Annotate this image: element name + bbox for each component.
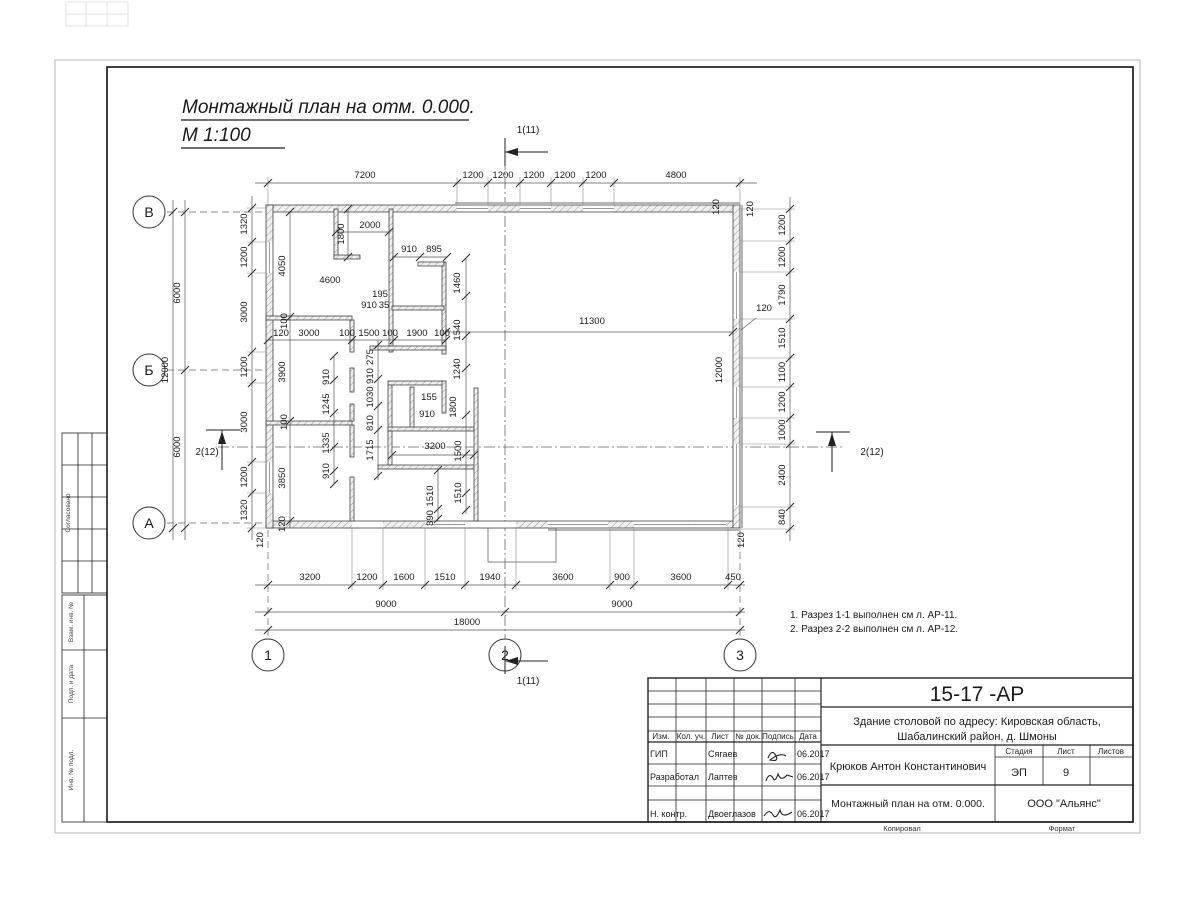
dimension-label: 6000	[172, 436, 183, 457]
dimension-label: 1460	[452, 272, 463, 293]
dimension-label: 100	[434, 328, 450, 339]
tb-name-ncontr: Двоеглазов	[708, 809, 756, 819]
dimension-label: 1900	[406, 328, 427, 339]
dimension-label: 1510	[453, 482, 464, 503]
dimension-lines	[173, 183, 790, 630]
inner-frame	[107, 67, 1133, 822]
dimension-label: 120	[277, 516, 288, 532]
dimension-label: 2000	[359, 220, 380, 231]
dimension-label: 4800	[665, 170, 686, 181]
tb-copied-label: Копировал	[883, 824, 921, 833]
dimension-label: 3000	[298, 328, 319, 339]
porch	[488, 528, 556, 562]
axis-row-v: В	[144, 204, 153, 220]
dimension-label: 1510	[425, 485, 436, 506]
dimension-label: 3600	[552, 572, 573, 583]
tb-object-line1: Здание столовой по адресу: Кировская обл…	[853, 716, 1101, 728]
dimension-label: 1600	[393, 572, 414, 583]
dimension-label: 4050	[277, 255, 288, 276]
dimension-label: 1320	[239, 213, 250, 234]
drawing-title-line1: Монтажный план на отм. 0.000.	[182, 97, 475, 118]
signature-gip	[768, 752, 786, 760]
dimension-label: 1030	[365, 386, 376, 407]
tb-sheets-label: Листов	[1098, 747, 1124, 756]
dimension-label: 1200	[585, 170, 606, 181]
dimension-label: 1240	[452, 358, 463, 379]
dimension-label: 900	[614, 572, 630, 583]
wall-bands	[455, 202, 743, 531]
dimension-label: 450	[725, 572, 741, 583]
dimension-label: 1510	[777, 327, 788, 348]
dimension-label: 1200	[523, 170, 544, 181]
dimension-label: 3200	[424, 441, 445, 452]
signature-dev	[766, 774, 793, 781]
dimension-label: 2400	[777, 464, 788, 485]
dimension-label: 12000	[160, 357, 171, 383]
section-mark-top-label: 1(11)	[517, 125, 540, 136]
axis-col-1: 1	[264, 647, 272, 663]
dimension-label: 1200	[777, 246, 788, 267]
dimension-label: 35	[379, 300, 390, 311]
dimension-label: 895	[426, 244, 442, 255]
dimension-label: 120	[255, 532, 266, 548]
dimension-label: 1940	[479, 572, 500, 583]
dimension-label: 1200	[356, 572, 377, 583]
dimension-label: 1200	[554, 170, 575, 181]
tb-doc-number: 15-17 -АР	[930, 683, 1025, 706]
dimension-label: 9000	[375, 599, 396, 610]
dimension-label: 1100	[777, 362, 788, 382]
tb-stage-label: Стадия	[1005, 747, 1032, 756]
section-mark-bottom-label: 1(11)	[517, 676, 540, 687]
dimension-label: 910	[419, 409, 435, 420]
tb-col-kol: Кол. уч.	[677, 732, 705, 741]
tb-role-gip: ГИП	[650, 749, 668, 759]
dimension-label: 1200	[492, 170, 513, 181]
dimension-label: 120	[711, 199, 722, 215]
dimension-label: 11300	[579, 316, 605, 327]
title-block: Изм. Кол. уч. Лист № док. Подпись Дата Г…	[648, 678, 1133, 833]
tb-role-ncontr: Н. контр.	[650, 809, 687, 819]
axis-row-a: А	[144, 515, 154, 531]
section-marks	[206, 138, 850, 674]
sheet-svg: Согласовано Взам. инв. № Подп. и дата Ин…	[0, 0, 1200, 900]
dimension-label: 1790	[777, 284, 788, 305]
tb-object-line2: Шабалинский район, д. Шмоны	[897, 731, 1057, 743]
dimension-label: 3900	[277, 361, 288, 382]
axis-row-b: Б	[144, 362, 153, 378]
dimension-label: 1335	[321, 432, 332, 453]
dimension-label: 9000	[611, 599, 632, 610]
tb-date-gip: 06.2017	[797, 749, 830, 759]
dimension-label: 3600	[670, 572, 691, 583]
strip-label-vzam: Взам. инв. №	[68, 602, 75, 642]
dimension-label: 1800	[448, 396, 459, 417]
section-mark-left-label: 2(12)	[195, 447, 218, 458]
dimension-label: 1200	[239, 356, 250, 377]
dimension-label: 910	[321, 369, 332, 385]
signature-ncontr	[764, 810, 792, 817]
dimension-label: 1500	[453, 440, 464, 461]
dimension-label: 810	[365, 415, 376, 431]
dimension-label: 1245	[321, 393, 332, 414]
dimension-label: 1200	[239, 466, 250, 487]
left-stamp-strips: Согласовано Взам. инв. № Подп. и дата Ин…	[62, 433, 107, 822]
dimension-label: 4600	[319, 275, 340, 286]
walls	[266, 205, 740, 528]
dimension-label: 100	[339, 328, 355, 339]
tb-chief-name: Крюков Антон Константинович	[830, 761, 987, 773]
dimension-label: 3850	[277, 467, 288, 488]
dimension-label: 1540	[452, 319, 463, 340]
dimension-label: 275	[365, 349, 376, 365]
dimension-label: 195	[372, 289, 388, 300]
tb-col-date: Дата	[799, 732, 817, 741]
tb-format-label: Формат	[1049, 824, 1076, 833]
note-2: 2. Разрез 2-2 выполнен см л. АР-12.	[790, 624, 958, 635]
tb-col-doc: № док.	[735, 732, 761, 741]
tb-drawing-title: Монтажный план на отм. 0.000.	[831, 798, 985, 810]
dimension-label: 910	[361, 300, 377, 311]
dimension-label: 6000	[172, 282, 183, 303]
dimension-label: 1500	[358, 328, 379, 339]
dimension-label: 12000	[714, 357, 725, 383]
dimension-label: 1200	[777, 391, 788, 412]
tb-name-dev: Лаптев	[708, 772, 738, 782]
tb-company: ООО "Альянс"	[1027, 798, 1101, 810]
dimension-ticks	[169, 179, 794, 634]
dimension-label: 1510	[434, 572, 455, 583]
dimension-label: 120	[745, 201, 756, 217]
note-1: 1. Разрез 1-1 выполнен см л. АР-11.	[790, 610, 957, 621]
dimension-label: 3200	[299, 572, 320, 583]
tb-name-gip: Сягаев	[708, 749, 737, 759]
signatures	[764, 752, 793, 816]
drawing-title: Монтажный план на отм. 0.000. М 1:100	[181, 97, 475, 148]
dimension-label: 1200	[462, 170, 483, 181]
dimension-label: 100	[382, 328, 398, 339]
dimension-label: 120	[756, 303, 772, 314]
axis-col-3: 3	[736, 647, 744, 663]
drawing-sheet: Согласовано Взам. инв. № Подп. и дата Ин…	[0, 0, 1200, 900]
tb-sheet-value: 9	[1063, 767, 1069, 779]
dimension-label: 390	[425, 510, 436, 526]
dimension-label: 120	[736, 532, 747, 548]
dimension-label: 100	[279, 313, 290, 329]
dimension-label: 1000	[777, 419, 788, 440]
drawing-title-scale: М 1:100	[182, 125, 251, 146]
tb-stage-value: ЭП	[1011, 767, 1027, 779]
tb-col-list: Лист	[711, 732, 729, 741]
dimension-label: 910	[401, 244, 417, 255]
dimension-label: 18000	[454, 617, 480, 628]
section-mark-right-label: 2(12)	[860, 447, 883, 458]
tb-date-ncontr: 06.2017	[797, 809, 830, 819]
strip-label-inv: Инв. № подл.	[68, 750, 75, 791]
strip-label-podp: Подп. и дата	[68, 664, 75, 703]
dimension-label: 1200	[777, 214, 788, 235]
dimension-label: 100	[279, 414, 290, 430]
dimension-label: 1200	[239, 246, 250, 267]
tb-date-dev: 06.2017	[797, 772, 830, 782]
scan-artifact-table	[66, 2, 128, 26]
dimension-label: 120	[273, 328, 289, 339]
dimension-label: 155	[421, 392, 437, 403]
dimension-label: 1715	[365, 439, 376, 460]
dimension-label: 3000	[239, 411, 250, 432]
tb-role-dev: Разработал	[650, 772, 699, 782]
dimension-label: 910	[321, 463, 332, 479]
strip-label-approved: Согласовано	[65, 493, 72, 532]
dimension-label: 840	[777, 509, 788, 525]
dimension-label: 3000	[239, 301, 250, 322]
dimension-label: 1320	[239, 499, 250, 520]
dimension-label: 7200	[354, 170, 375, 181]
tb-col-sign: Подпись	[762, 732, 794, 741]
dimension-label: 1800	[336, 223, 347, 244]
tb-col-izm: Изм.	[652, 732, 669, 741]
dimension-label: 910	[365, 368, 376, 384]
tb-sheet-label: Лист	[1057, 747, 1075, 756]
